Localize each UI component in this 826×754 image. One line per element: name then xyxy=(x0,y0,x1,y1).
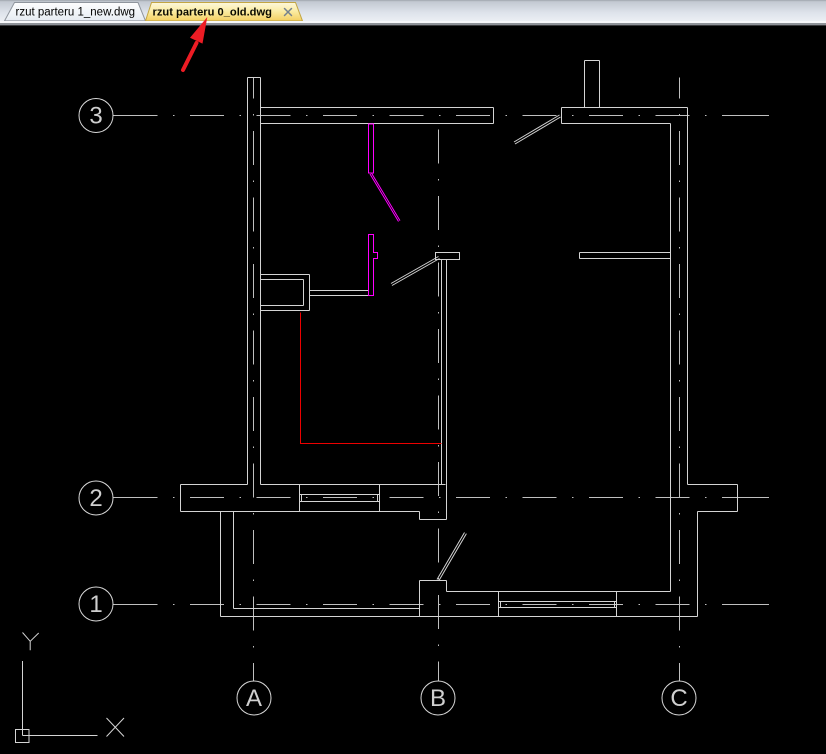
svg-text:C: C xyxy=(670,685,687,712)
svg-text:B: B xyxy=(430,685,446,712)
svg-text:3: 3 xyxy=(89,103,102,130)
svg-text:rzut parteru 1_new.dwg: rzut parteru 1_new.dwg xyxy=(16,7,136,19)
svg-text:1: 1 xyxy=(89,591,102,618)
svg-text:A: A xyxy=(246,685,262,712)
svg-text:2: 2 xyxy=(89,485,102,512)
svg-text:rzut parteru 0_old.dwg: rzut parteru 0_old.dwg xyxy=(153,7,273,19)
